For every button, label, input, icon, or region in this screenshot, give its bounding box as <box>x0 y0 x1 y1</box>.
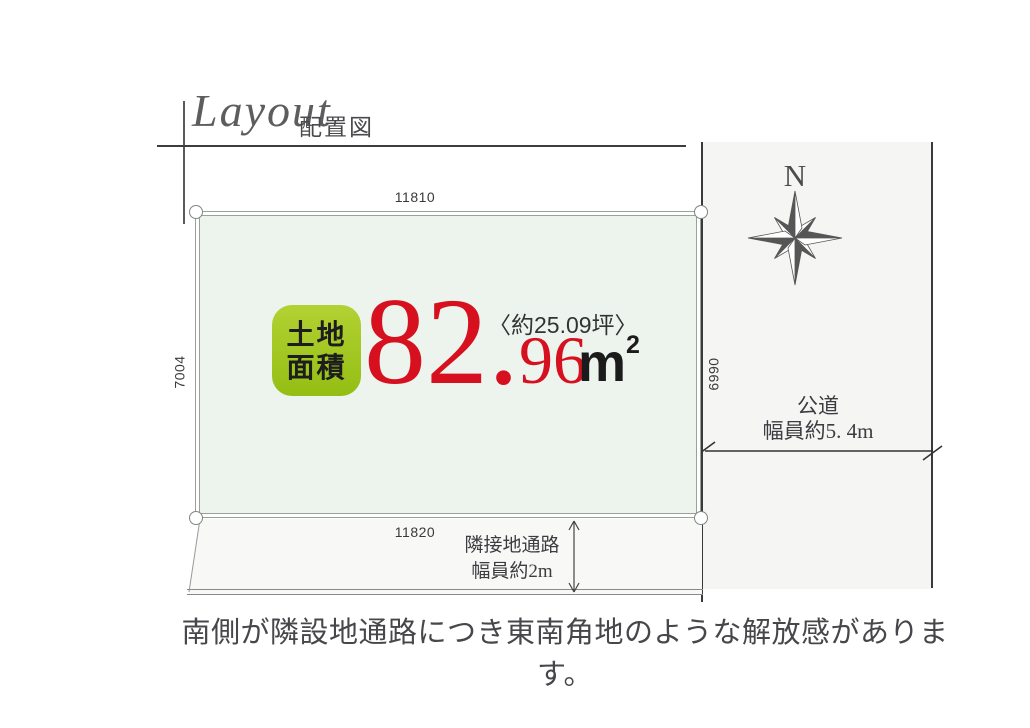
title-vertical-rule <box>183 101 185 224</box>
survey-point-top-left <box>189 205 203 219</box>
land-area-value: 82. 96 <box>364 280 587 404</box>
title-horizontal-rule <box>157 145 686 147</box>
land-area-unit: m2 <box>578 331 640 390</box>
dimension-right-value: 6990 <box>706 357 722 390</box>
dimension-left: 7004 <box>160 352 200 392</box>
passage-width-dimension-arrow-icon <box>560 516 588 598</box>
road-width-dimension-arrow-icon <box>690 436 946 466</box>
land-area-badge-line2: 面積 <box>286 351 346 384</box>
layout-diagram-page: Layout 配置図 N <box>0 0 1030 728</box>
land-area-badge: 土地 面積 <box>272 305 361 396</box>
dimension-bottom: 11820 <box>375 524 455 540</box>
compass-rose-icon <box>745 184 845 288</box>
survey-point-bottom-right <box>694 511 708 525</box>
land-area-unit-base: m <box>578 333 626 393</box>
page-title-japanese: 配置図 <box>299 108 374 142</box>
land-area-unit-sup: 2 <box>626 331 640 359</box>
road-label-name: 公道 <box>728 394 908 419</box>
land-area-value-main: 82. <box>364 280 519 404</box>
road-right-boundary-line <box>931 142 933 588</box>
survey-point-bottom-left <box>189 511 203 525</box>
dimension-top: 11810 <box>375 189 455 205</box>
survey-point-top-right <box>694 205 708 219</box>
caption-text: 南側が隣設地通路につき東南角地のような解放感があります。 <box>170 609 960 693</box>
passage-bottom-line-inner <box>187 594 703 595</box>
dimension-right: 6990 <box>694 354 734 394</box>
land-area-badge-line1: 土地 <box>286 318 346 351</box>
passage-bottom-line-outer <box>187 589 703 590</box>
dimension-left-value: 7004 <box>172 355 188 388</box>
